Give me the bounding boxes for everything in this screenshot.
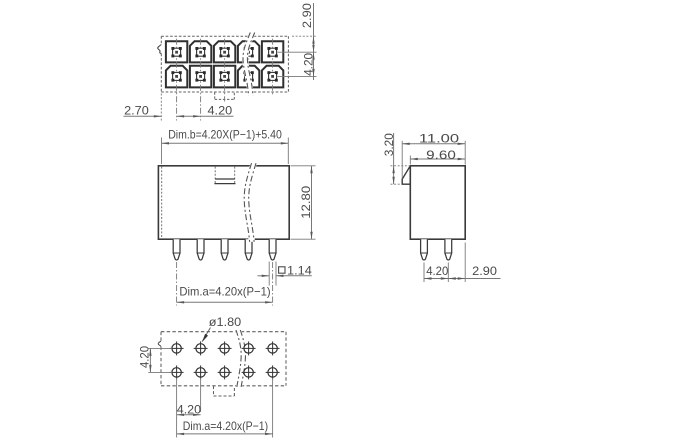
svg-text:2.90: 2.90 (300, 3, 314, 28)
svg-text:Dim.b=4.20X(P−1)+5.40: Dim.b=4.20X(P−1)+5.40 (168, 128, 282, 142)
svg-text:4.20: 4.20 (177, 402, 202, 416)
svg-text:4.20: 4.20 (426, 264, 448, 278)
svg-text:ø1.80: ø1.80 (209, 315, 242, 329)
svg-text:4.20: 4.20 (138, 346, 152, 368)
svg-text:11.00: 11.00 (419, 131, 460, 145)
svg-text:2.70: 2.70 (124, 104, 149, 118)
svg-text:12.80: 12.80 (299, 185, 313, 218)
svg-text:2.90: 2.90 (472, 264, 497, 278)
svg-text:Dim.a=4.20x(P−1): Dim.a=4.20x(P−1) (183, 419, 268, 433)
svg-text:4.20: 4.20 (301, 53, 315, 76)
svg-text:4.20: 4.20 (208, 104, 233, 118)
svg-text:1.14: 1.14 (287, 263, 312, 277)
svg-text:9.60: 9.60 (426, 148, 456, 162)
svg-text:3.20: 3.20 (382, 133, 396, 156)
svg-text:Dim.a=4.20x(P−1): Dim.a=4.20x(P−1) (179, 285, 270, 299)
